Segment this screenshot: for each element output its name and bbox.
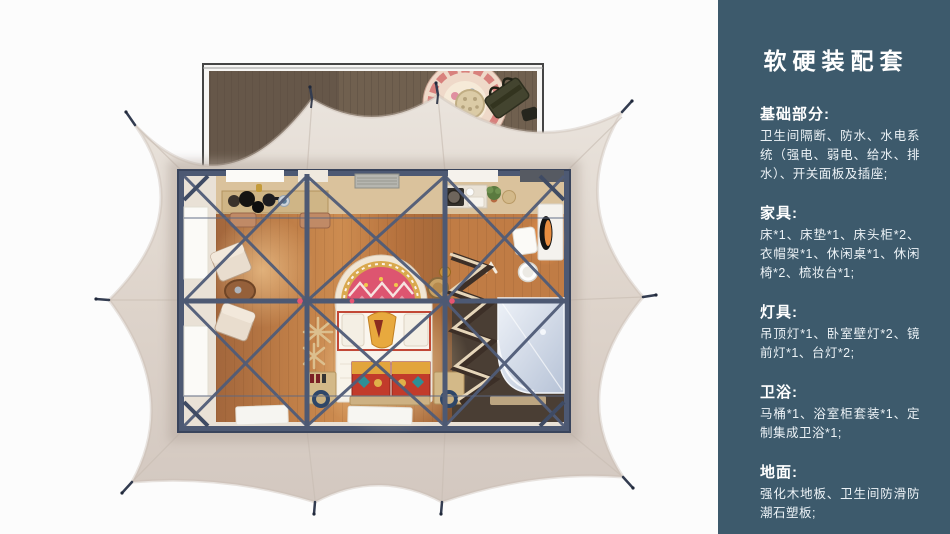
slide: 软硬装配套 基础部分: 卫生间隔断、防水、水电系统（强电、弱电、给水、排水）、开… bbox=[0, 0, 950, 534]
cup bbox=[235, 287, 242, 294]
basin bbox=[448, 191, 461, 204]
kettle bbox=[263, 194, 276, 207]
section-body: 吊顶灯*1、卧室壁灯*2、镜前灯*1、台灯*2; bbox=[760, 325, 920, 363]
section-body: 卫生间隔断、防水、水电系统（强电、弱电、给水、排水）、开关面板及插座; bbox=[760, 127, 920, 184]
nightstand-left bbox=[306, 372, 336, 406]
section-body: 床*1、床垫*1、床头柜*2、衣帽架*1、休闲桌*1、休闲椅*2、梳妆台*1; bbox=[760, 226, 920, 283]
basket bbox=[503, 191, 516, 204]
section-lighting: 灯具: 吊顶灯*1、卧室壁灯*2、镜前灯*1、台灯*2; bbox=[760, 303, 920, 363]
sidebar-title: 软硬装配套 bbox=[752, 42, 920, 76]
section-furniture: 家具: 床*1、床垫*1、床头柜*2、衣帽架*1、休闲桌*1、休闲椅*2、梳妆台… bbox=[760, 204, 920, 283]
floorplan-render bbox=[0, 0, 718, 534]
ceiling-vent bbox=[355, 174, 399, 188]
gold-bottle bbox=[256, 184, 262, 192]
section-heading: 家具: bbox=[760, 204, 920, 223]
section-heading: 地面: bbox=[760, 463, 920, 482]
jug bbox=[466, 188, 474, 196]
section-body: 强化木地板、卫生间防滑防潮石塑板; bbox=[760, 485, 920, 523]
section-body: 马桶*1、浴室柜套装*1、定制集成卫浴*1; bbox=[760, 405, 920, 443]
section-heading: 灯具: bbox=[760, 303, 920, 322]
hat bbox=[252, 201, 264, 213]
section-basics: 基础部分: 卫生间隔断、防水、水电系统（强电、弱电、给水、排水）、开关面板及插座… bbox=[760, 105, 920, 184]
section-heading: 基础部分: bbox=[760, 105, 920, 124]
storage-chest bbox=[392, 362, 430, 398]
gold-pillow bbox=[368, 312, 396, 348]
sidebar: 软硬装配套 基础部分: 卫生间隔断、防水、水电系统（强电、弱电、给水、排水）、开… bbox=[718, 0, 950, 534]
vanity-mirror bbox=[540, 216, 553, 250]
section-flooring: 地面: 强化木地板、卫生间防滑防潮石塑板; bbox=[760, 463, 920, 523]
section-bathroom: 卫浴: 马桶*1、浴室柜套装*1、定制集成卫浴*1; bbox=[760, 383, 920, 443]
hat bbox=[228, 195, 240, 207]
section-heading: 卫浴: bbox=[760, 383, 920, 402]
